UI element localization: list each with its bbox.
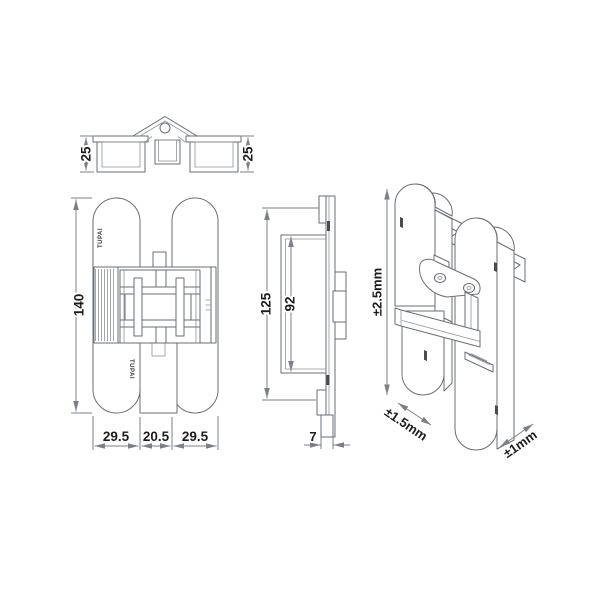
top-body-left	[97, 142, 145, 172]
dim-top-right: 25	[240, 136, 256, 172]
dim-label-width-left: 29.5	[103, 429, 130, 444]
dim-label-width-right: 29.5	[182, 429, 209, 444]
persp-screw-slot-1	[400, 217, 403, 228]
persp-arm-boss-right	[464, 284, 475, 293]
top-peak-tab-right	[178, 137, 185, 143]
side-top-tab	[319, 196, 326, 223]
side-bottom-block	[317, 390, 326, 415]
front-mechanism-housing	[94, 267, 216, 343]
side-knuckle-middle	[333, 291, 346, 322]
top-body-left-inner	[102, 142, 140, 167]
front-mech-tongue-bottom	[156, 327, 166, 343]
adjustment-vertical: ±2.5mm	[370, 189, 388, 395]
adjustment-label-vertical: ±2.5mm	[370, 268, 385, 316]
dim-label-top-left: 25	[79, 146, 94, 162]
brand-stamp-lower: TUPAI	[128, 359, 134, 379]
persp-screw-slot-3	[494, 262, 497, 272]
front-mech-tongue-top	[156, 270, 166, 287]
dim-label-width-center: 20.5	[143, 429, 170, 444]
top-flange-left	[93, 136, 148, 142]
front-mech-right-bar	[176, 278, 184, 336]
side-screw-slot-upper	[327, 221, 330, 231]
side-knuckle-top	[335, 272, 346, 291]
dim-label-front-height: 140	[72, 294, 87, 317]
dim-label-side-plate-height: 125	[259, 292, 274, 315]
top-center-link-inner	[159, 140, 177, 161]
persp-screw-slot-2	[424, 350, 427, 361]
dim-label-side-inner-height: 92	[283, 296, 298, 311]
dim-side-inner-height: 92	[283, 237, 298, 372]
drawing-sheet: 25 25 TUPAI TUPAI	[0, 0, 600, 600]
side-knuckle-bottom	[335, 322, 346, 339]
dim-front-height: 140	[71, 198, 92, 413]
top-flange-right	[186, 136, 241, 142]
top-body-right	[190, 142, 238, 172]
persp-right-side-band	[497, 242, 514, 449]
front-top-center-tab	[153, 252, 166, 268]
side-bottom-tab	[321, 415, 333, 437]
dim-front-widths: 29.5 20.5 29.5	[93, 416, 218, 450]
top-body-right-inner	[195, 142, 233, 167]
hinge-technical-drawing: 25 25 TUPAI TUPAI	[0, 0, 600, 600]
perspective-view: ±2.5mm ±1.5mm ±1mm	[370, 184, 540, 461]
top-pivot-circle	[160, 123, 170, 133]
persp-screw-slot-4	[495, 405, 498, 415]
front-view: TUPAI TUPAI 140 29.5 20.5 29.5	[71, 198, 218, 450]
front-bottom-center-strip	[140, 343, 177, 413]
dim-label-top-right: 25	[241, 146, 256, 162]
side-view: 125 92 7	[259, 196, 351, 449]
dim-label-side-thickness: 7	[309, 429, 316, 444]
side-screw-slot-lower	[327, 375, 330, 385]
dim-top-left: 25	[79, 136, 95, 172]
front-mech-left-bar	[134, 278, 142, 336]
adjustment-lateral: ±1.5mm	[382, 403, 431, 444]
top-view: 25 25	[79, 117, 256, 173]
adjustment-label-lateral: ±1.5mm	[382, 404, 430, 443]
persp-arm-boss-left	[435, 274, 446, 283]
brand-stamp-upper: TUPAI	[98, 228, 104, 248]
